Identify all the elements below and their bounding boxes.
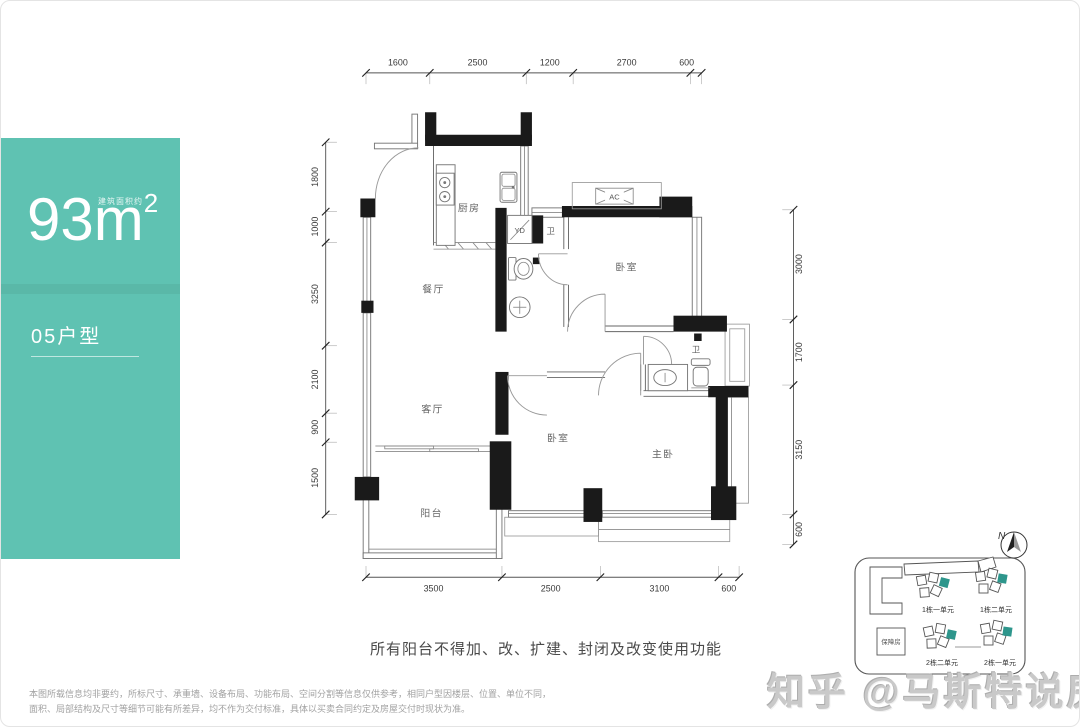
dim-right: 3000 1700 3150 600 xyxy=(782,206,804,548)
dim-top: 1600 2500 1200 2700 600 xyxy=(362,57,705,84)
room-label-kitchen: 厨房 xyxy=(458,202,480,215)
ac-label: AC xyxy=(609,192,620,201)
north-label: N xyxy=(998,531,1006,542)
windows xyxy=(363,114,749,558)
unit-highlight xyxy=(946,629,957,640)
entry-door-arc xyxy=(375,148,418,199)
unit-type-label: 05户型 xyxy=(31,320,101,349)
dim-label: 600 xyxy=(679,57,694,67)
area-value: 93m2 xyxy=(27,190,158,250)
toilet-icon xyxy=(509,258,533,281)
floor-plan: 1600 2500 1200 2700 600 1800 1000 3250 2… xyxy=(281,41,841,641)
dim-label: 3250 xyxy=(310,284,320,304)
dim-label: 900 xyxy=(310,420,320,435)
support-housing-label: 保障房 xyxy=(881,637,901,646)
room-label-dining: 餐厅 xyxy=(422,282,444,295)
stove-icon xyxy=(436,165,455,246)
shaft-marker xyxy=(694,334,702,342)
dim-label: 2500 xyxy=(468,57,488,67)
dim-bottom: 3500 2500 3100 600 xyxy=(362,566,743,593)
building-cluster-1 xyxy=(916,572,949,597)
disclaimer-line2: 面积、局部结构及尺寸等细节可能有所差异，均不作为交付标准，具体以买卖合同约定及房… xyxy=(29,702,629,717)
dim-label: 1800 xyxy=(310,167,320,187)
room-label-bath2: 卫 xyxy=(692,344,700,354)
room-label-bedroom1: 卧室 xyxy=(615,261,637,274)
dim-left: 1800 1000 3250 2100 900 1500 xyxy=(310,139,337,519)
bath2-basin-icon xyxy=(648,364,687,390)
dim-label: 2100 xyxy=(310,369,320,389)
dim-label: 1600 xyxy=(388,57,408,67)
area-unit: m xyxy=(94,186,144,253)
watermark: 知乎 @马斯特说房 xyxy=(767,661,1080,716)
bath1-door-arc xyxy=(539,254,568,285)
unit-type-underline xyxy=(31,356,139,357)
interior-walls xyxy=(434,146,716,396)
laundry-label: YD xyxy=(515,226,526,235)
building-cluster-3 xyxy=(923,623,956,648)
dim-label: 3150 xyxy=(794,440,804,460)
building-outline xyxy=(870,567,902,614)
unit-highlight xyxy=(939,577,950,588)
building-cluster-2 xyxy=(975,568,1007,593)
master-door-arc xyxy=(599,353,641,395)
room-label-balcony: 阳台 xyxy=(420,506,442,519)
sidebar: 建筑面积约 93m2 05户型 xyxy=(1,138,180,559)
unit-label-1-2: 1栋二单元 xyxy=(980,605,1012,614)
disclaimer-line1: 本图所载信息均非要约，所标尺寸、承重墙、设备布局、功能布局、空间分割等信息仅供参… xyxy=(29,687,629,702)
bedroom1-door-arc xyxy=(568,294,606,332)
balcony-notice: 所有阳台不得加、改、扩建、封闭及改变使用功能 xyxy=(281,638,811,659)
bedroom2-door-arc xyxy=(508,376,547,415)
dim-label: 2500 xyxy=(541,583,561,593)
ac-unit-icon: AC xyxy=(572,183,661,209)
room-label-bedroom2: 卧室 xyxy=(547,431,569,444)
area-number: 93 xyxy=(27,186,94,253)
disclaimer: 本图所载信息均非要约，所标尺寸、承重墙、设备布局、功能布局、空间分割等信息仅供参… xyxy=(29,687,629,718)
unit-highlight xyxy=(997,573,1007,583)
washbasin-icon xyxy=(509,297,530,318)
unit-label-1-1: 1栋一单元 xyxy=(922,605,954,614)
dim-label: 1000 xyxy=(310,217,320,237)
bath2-door-arc xyxy=(644,336,672,364)
dim-label: 3000 xyxy=(794,254,804,274)
room-label-living: 客厅 xyxy=(421,402,443,415)
room-label-master: 主卧 xyxy=(652,447,674,460)
floor-plan-page: 建筑面积约 93m2 05户型 1600 2500 1200 2700 600 xyxy=(0,0,1080,727)
dim-label: 2700 xyxy=(617,57,637,67)
north-compass-icon: N xyxy=(998,531,1027,558)
dim-label: 1500 xyxy=(310,468,320,488)
building-cluster-4 xyxy=(980,620,1012,645)
unit-highlight xyxy=(1002,626,1012,636)
dim-label: 600 xyxy=(721,583,736,593)
dim-label: 1700 xyxy=(794,342,804,362)
dim-label: 3100 xyxy=(650,583,670,593)
walls xyxy=(355,112,749,522)
dim-label: 3500 xyxy=(424,583,444,593)
building-outline xyxy=(904,561,979,575)
bath2-toilet-icon xyxy=(691,359,710,388)
kitchen-sink-icon xyxy=(500,172,517,202)
room-label-bath1: 卫 xyxy=(546,226,554,236)
dim-label: 1200 xyxy=(540,57,560,67)
dim-label: 600 xyxy=(794,522,804,537)
area-exponent: 2 xyxy=(144,188,158,218)
sidebar-band xyxy=(1,284,180,294)
